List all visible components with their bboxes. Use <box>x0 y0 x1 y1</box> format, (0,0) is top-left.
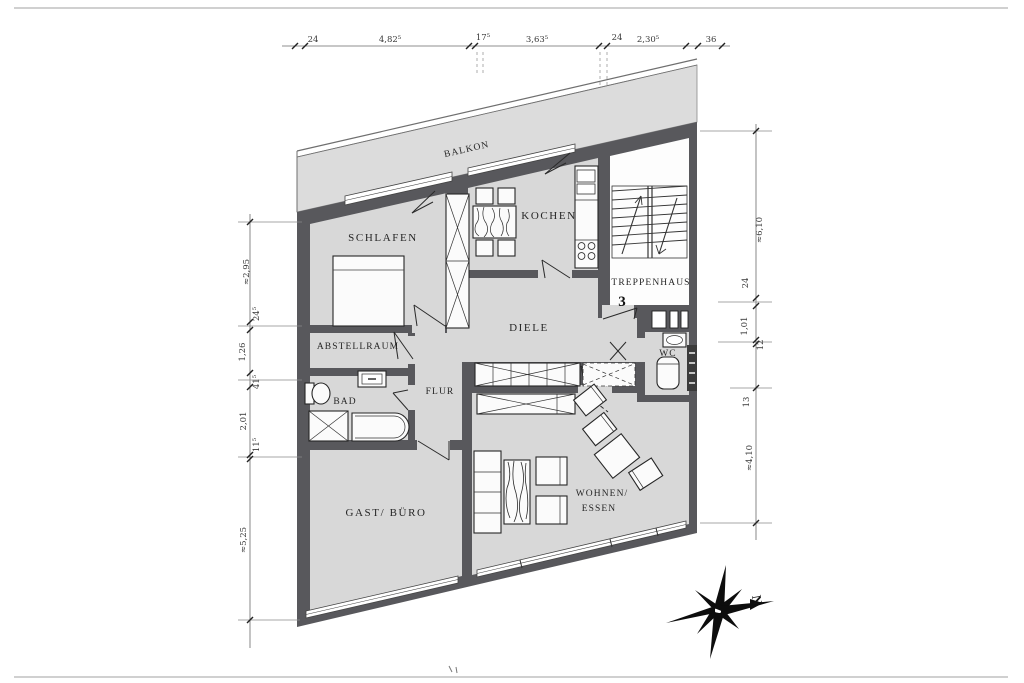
chair <box>476 188 493 204</box>
kochen-label: KOCHEN <box>521 210 576 222</box>
kitchen-table <box>473 206 516 238</box>
compass-rose: N <box>666 565 774 659</box>
chair <box>498 240 515 256</box>
wardrobe-wohnen <box>477 394 575 414</box>
dim-label: 24⁵ <box>252 306 262 321</box>
dim-label: 13 <box>742 397 752 408</box>
flur-label: FLUR <box>426 387 455 397</box>
abstellraum-label: ABSTELLRAUM <box>317 342 399 352</box>
dim-label: 11⁵ <box>252 437 262 452</box>
floor-plan-page: BALKON <box>0 0 1024 683</box>
door-opening <box>408 385 416 410</box>
chair <box>498 188 515 204</box>
dim-label: 2,01 <box>239 412 249 431</box>
dim-label: 12 <box>756 340 766 351</box>
dimension-right: ≈6,10 24 1,01 12 13 ≈4,10 <box>700 124 772 540</box>
bathtub <box>352 413 409 441</box>
wardrobe-schlafen <box>446 194 469 328</box>
dim-label: 41⁵ <box>252 374 262 389</box>
scan-mark <box>456 667 457 673</box>
dimension-left: ≈2,95 24⁵ 1,26 41⁵ 2,01 11⁵ ≈5,25 <box>238 214 302 648</box>
dim-label: 24 <box>741 278 751 289</box>
dim-label: 24 <box>612 33 623 43</box>
radiator <box>687 345 697 391</box>
dim-label: 3,63⁵ <box>526 35 549 45</box>
shaft-boxes <box>652 311 688 328</box>
wc-label: WC <box>659 349 677 359</box>
armchair <box>536 457 567 485</box>
scan-mark <box>449 666 452 672</box>
door-opening <box>538 270 572 278</box>
door-opening <box>417 440 450 450</box>
door-opening <box>637 338 645 362</box>
armchair <box>536 496 567 524</box>
dim-label: 4,82⁵ <box>379 35 402 45</box>
dim-label: 24 <box>308 35 319 45</box>
room-flur <box>415 325 468 440</box>
dim-label: ≈6,10 <box>755 217 765 243</box>
dim-label: 2,30⁵ <box>637 35 660 45</box>
treppenhaus-label: TREPPENHAUS <box>611 278 690 288</box>
schlafen-label: SCHLAFEN <box>348 232 418 244</box>
dim-label: 17⁵ <box>476 33 491 43</box>
gast-buero-label: GAST/ BÜRO <box>345 507 426 519</box>
kitchen-counter <box>575 166 598 268</box>
floor-plan-canvas: BALKON <box>0 0 1024 683</box>
bad-label: BAD <box>333 397 356 407</box>
chair <box>476 240 493 256</box>
wardrobe-diele <box>475 363 635 386</box>
door-opening <box>412 325 445 333</box>
north-label: N <box>749 594 766 606</box>
dim-label: 1,01 <box>740 317 750 336</box>
wohnen-label-1: WOHNEN/ <box>576 489 629 499</box>
dim-label: ≈2,95 <box>242 259 252 285</box>
wc-toilet <box>657 357 679 389</box>
dim-label: 36 <box>706 35 717 45</box>
dim-label: ≈5,25 <box>239 527 249 553</box>
wohnen-label-2: ESSEN <box>582 504 617 514</box>
unit-number: 3 <box>618 294 626 310</box>
kitchen-sink <box>577 170 595 182</box>
door-opening <box>408 336 416 364</box>
dim-label: 1,26 <box>238 343 248 362</box>
dim-label: ≈4,10 <box>745 445 755 471</box>
diele-label: DIELE <box>509 322 549 334</box>
bed <box>333 256 404 326</box>
